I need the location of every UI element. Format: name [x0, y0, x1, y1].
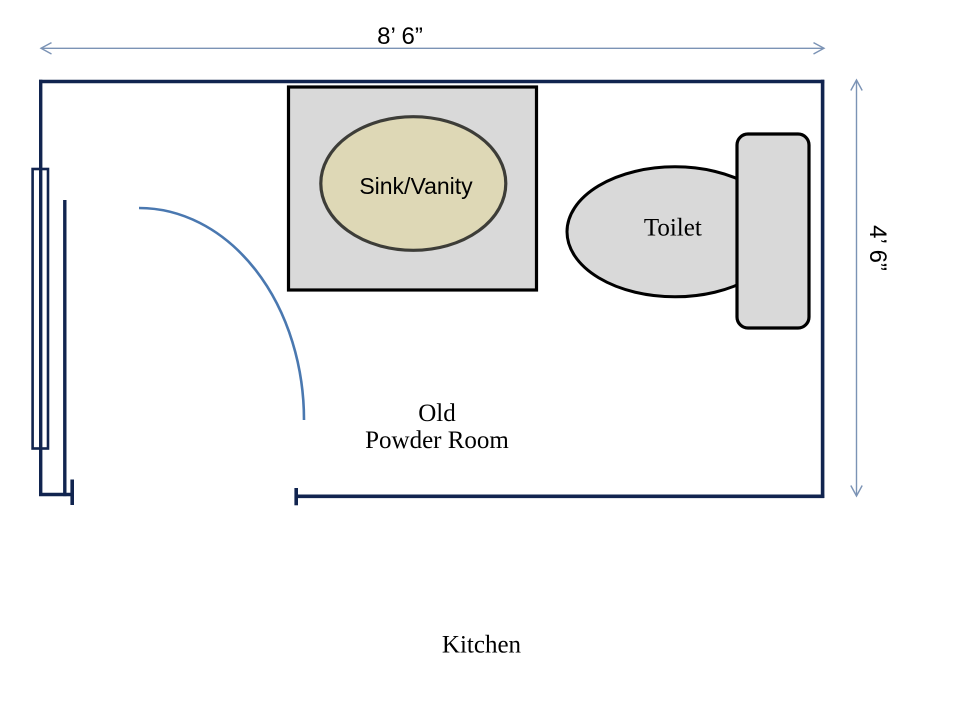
svg-text:Kitchen: Kitchen: [442, 631, 522, 658]
svg-text:4’ 6”: 4’ 6”: [864, 225, 891, 271]
svg-text:Old: Old: [418, 400, 456, 427]
svg-text:Toilet: Toilet: [644, 215, 702, 242]
svg-text:Powder Room: Powder Room: [365, 427, 509, 454]
svg-text:8’ 6”: 8’ 6”: [377, 23, 423, 50]
svg-text:Sink/Vanity: Sink/Vanity: [359, 173, 473, 199]
